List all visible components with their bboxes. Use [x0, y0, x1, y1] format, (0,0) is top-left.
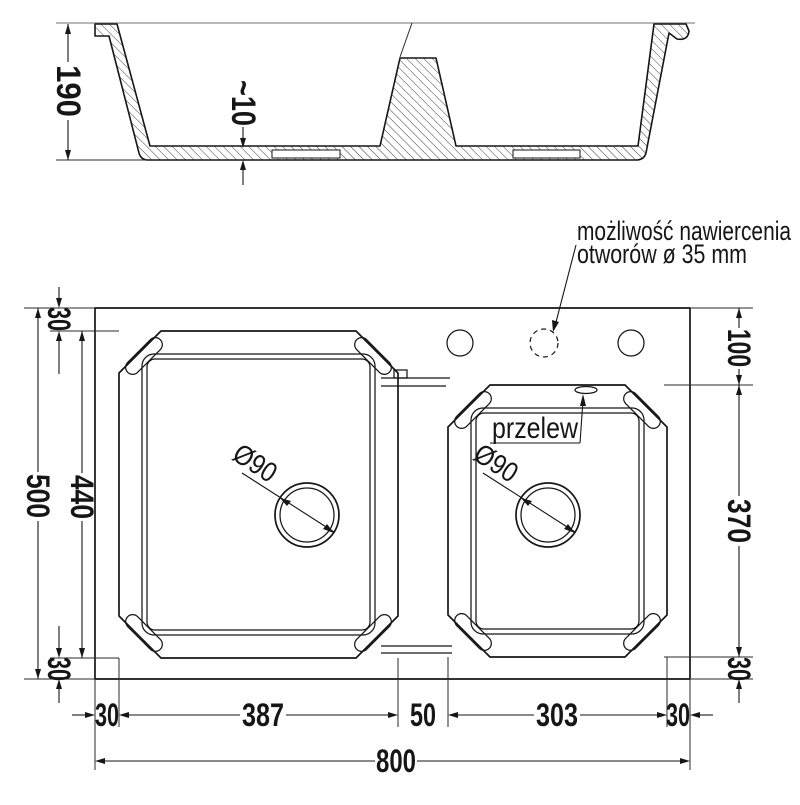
sink-technical-drawing: 190 ~10 możliwość nawiercenia otworów ø … — [0, 0, 800, 800]
dim-label-10: ~10 — [224, 80, 262, 126]
sink-cross-section — [95, 24, 689, 160]
left-drain-diameter-label: Ø90 — [227, 438, 282, 489]
annotation-leader-line — [555, 245, 576, 326]
dim-label-190: 190 — [49, 65, 87, 117]
dim-label-500: 500 — [20, 474, 56, 518]
dim-floor-10: ~10 — [224, 80, 262, 185]
left-bowl-floor-edge — [147, 359, 370, 630]
dim-label-30: 30 — [666, 697, 690, 733]
right-drain-diameter-label: Ø90 — [468, 438, 523, 489]
dimensions-right: 100 370 30 — [664, 308, 757, 703]
dim-label-30: 30 — [41, 657, 77, 681]
dim-left-top-30: 30 — [41, 287, 77, 374]
dim-left-bottom-30: 30 — [41, 626, 77, 703]
right-bowl-corner-bevel-br — [621, 611, 663, 653]
bowl-divider — [381, 370, 452, 653]
dim-label-50: 50 — [410, 697, 436, 733]
dim-right-bottom-30: 30 — [721, 657, 757, 703]
left-bowl-corner-bevel-tr — [352, 335, 394, 377]
left-bowl-corner-bevel-bl — [123, 612, 165, 654]
overflow-label: przelew — [492, 412, 578, 445]
faucet-hole-left — [447, 330, 473, 356]
right-bowl-corner-bevel-bl — [452, 611, 494, 653]
dim-label-370: 370 — [721, 499, 757, 543]
side-section-view: 190 ~10 — [49, 23, 695, 185]
dim-label-30: 30 — [41, 307, 77, 331]
dim-label-303: 303 — [536, 697, 578, 733]
drilling-annotation: możliwość nawiercenia otworów ø 35 mm — [552, 216, 792, 332]
overflow-leader-line — [580, 400, 583, 443]
annotation-leader-arrowhead — [552, 320, 559, 332]
left-bowl-corner-bevel-tl — [123, 335, 165, 377]
sink-outer-edge — [95, 308, 690, 679]
overflow-slot — [575, 387, 597, 394]
left-bowl-outer-rim — [119, 331, 398, 658]
left-bowl: Ø90 — [119, 331, 398, 658]
drain-recess-right — [513, 150, 580, 158]
section-cut-line — [400, 23, 412, 57]
dim-depth-190: 190 — [49, 24, 87, 160]
annotation-line2: otworów ø 35 mm — [577, 239, 747, 269]
arrowhead-up — [65, 24, 71, 34]
left-bowl-corner-bevel-br — [352, 612, 394, 654]
left-bowl-inner-rim — [142, 354, 375, 635]
dim-right-bowl-370: 370 — [721, 385, 757, 657]
dim-right-top-100: 100 — [721, 308, 757, 385]
dim-total-height-500: 500 — [20, 308, 56, 679]
dim-label-387: 387 — [242, 697, 284, 733]
overflow-leader-arrowhead — [580, 394, 586, 406]
drain-recess-left — [272, 150, 340, 158]
right-bowl-corner-bevel-tl — [452, 389, 494, 431]
drilling-hole-dashed-circle — [530, 329, 558, 357]
plan-view: Ø90 Ø90 przelew — [95, 308, 690, 679]
dimensions-bottom: 30 387 50 303 30 800 — [72, 657, 713, 779]
dim-label-30: 30 — [721, 657, 757, 681]
dim-row-segments — [72, 712, 713, 718]
dimensions-left: 500 440 30 30 — [20, 287, 119, 703]
dim-label-440: 440 — [64, 475, 100, 519]
dim-label-800: 800 — [376, 743, 416, 779]
arrowhead-down — [65, 150, 71, 160]
faucet-hole-right — [618, 330, 644, 356]
drawing-canvas: 190 ~10 możliwość nawiercenia otworów ø … — [0, 0, 800, 800]
right-bowl: Ø90 przelew — [448, 385, 667, 657]
dim-label-100: 100 — [721, 329, 757, 367]
dim-total-width-800: 800 — [95, 743, 690, 779]
arrowhead-up — [240, 160, 246, 170]
right-bowl-corner-bevel-tr — [621, 389, 663, 431]
dim-label-30: 30 — [95, 697, 119, 733]
